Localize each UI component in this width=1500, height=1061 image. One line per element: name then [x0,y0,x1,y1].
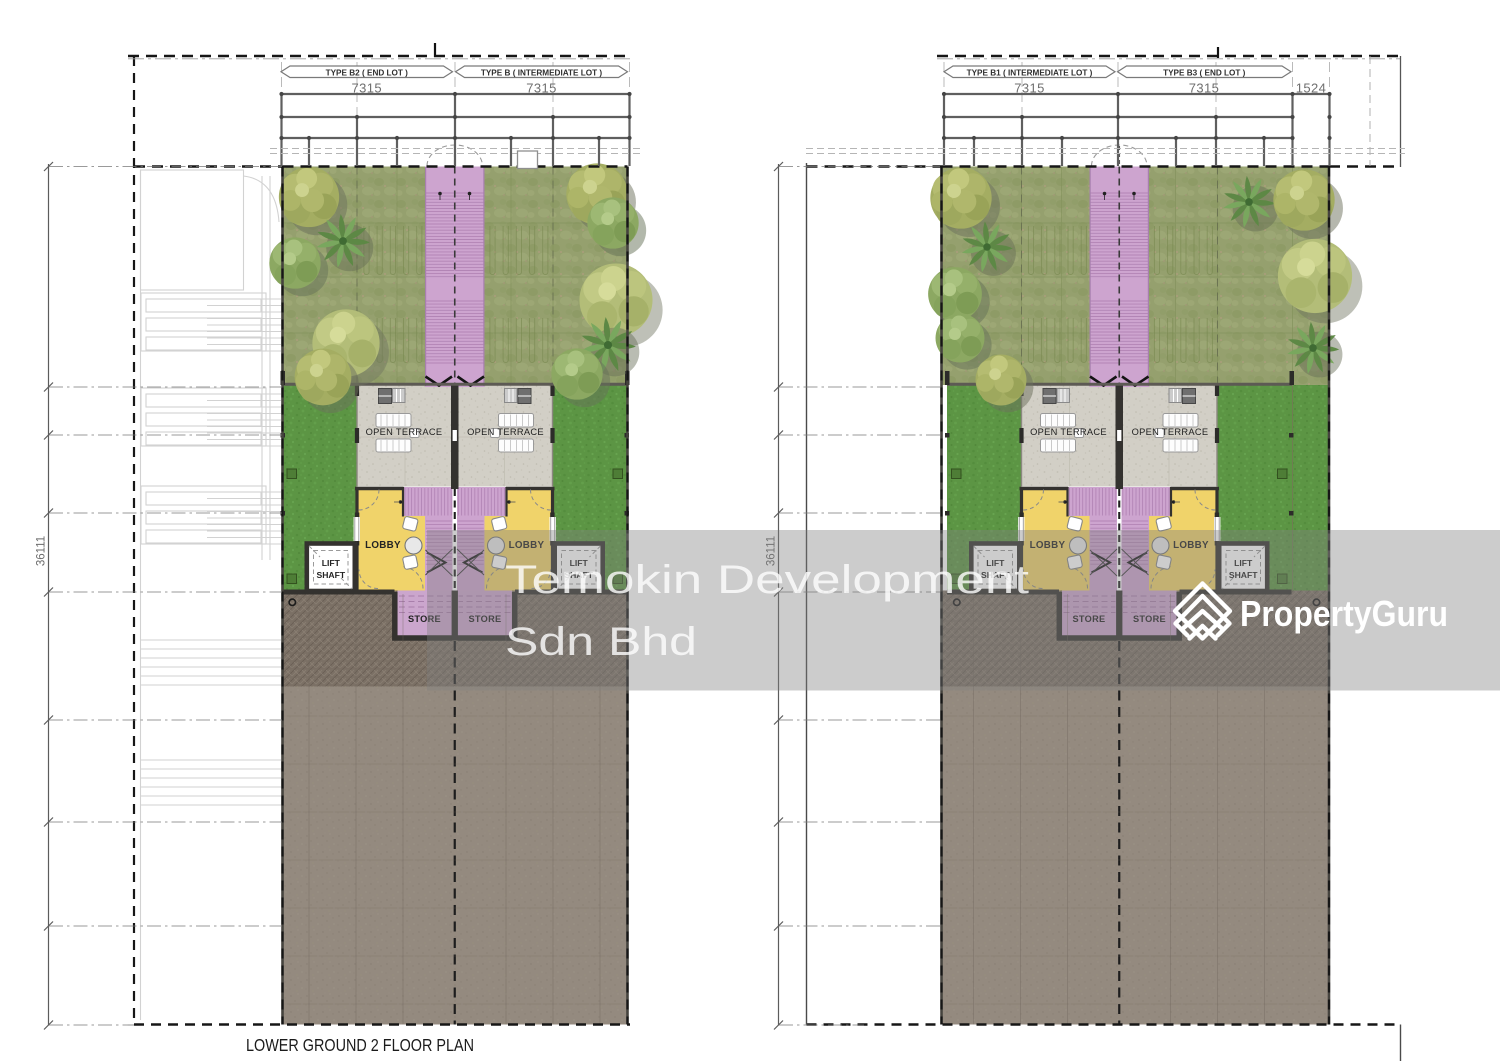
svg-text:OPEN TERRACE: OPEN TERRACE [1132,427,1209,437]
svg-text:1524: 1524 [1296,81,1327,96]
svg-text:36111: 36111 [36,536,48,566]
svg-text:7315: 7315 [351,81,382,96]
svg-text:LOBBY: LOBBY [365,540,401,551]
svg-text:OPEN TERRACE: OPEN TERRACE [467,427,544,437]
svg-text:OPEN TERRACE: OPEN TERRACE [1030,427,1107,437]
svg-text:OPEN TERRACE: OPEN TERRACE [366,427,443,437]
svg-text:Sdn Bhd: Sdn Bhd [505,620,697,664]
svg-text:PropertyGuru: PropertyGuru [1240,593,1448,634]
svg-text:TYPE B3 ( END LOT ): TYPE B3 ( END LOT ) [1163,68,1246,77]
svg-text:7315: 7315 [526,81,557,96]
svg-text:7315: 7315 [1189,81,1220,96]
svg-text:LIFT: LIFT [322,558,341,568]
svg-text:SHAFT: SHAFT [316,570,345,580]
svg-text:7315: 7315 [1014,81,1045,96]
svg-text:LOWER GROUND 2 FLOOR PLAN: LOWER GROUND 2 FLOOR PLAN [246,1035,474,1055]
svg-text:TYPE B2 ( END LOT ): TYPE B2 ( END LOT ) [326,68,409,77]
svg-text:TYPE B ( INTERMEDIATE LOT ): TYPE B ( INTERMEDIATE LOT ) [481,68,603,77]
svg-text:Temokin Development: Temokin Development [505,558,1029,602]
svg-text:TYPE B1 ( INTERMEDIATE LOT ): TYPE B1 ( INTERMEDIATE LOT ) [967,68,1093,77]
